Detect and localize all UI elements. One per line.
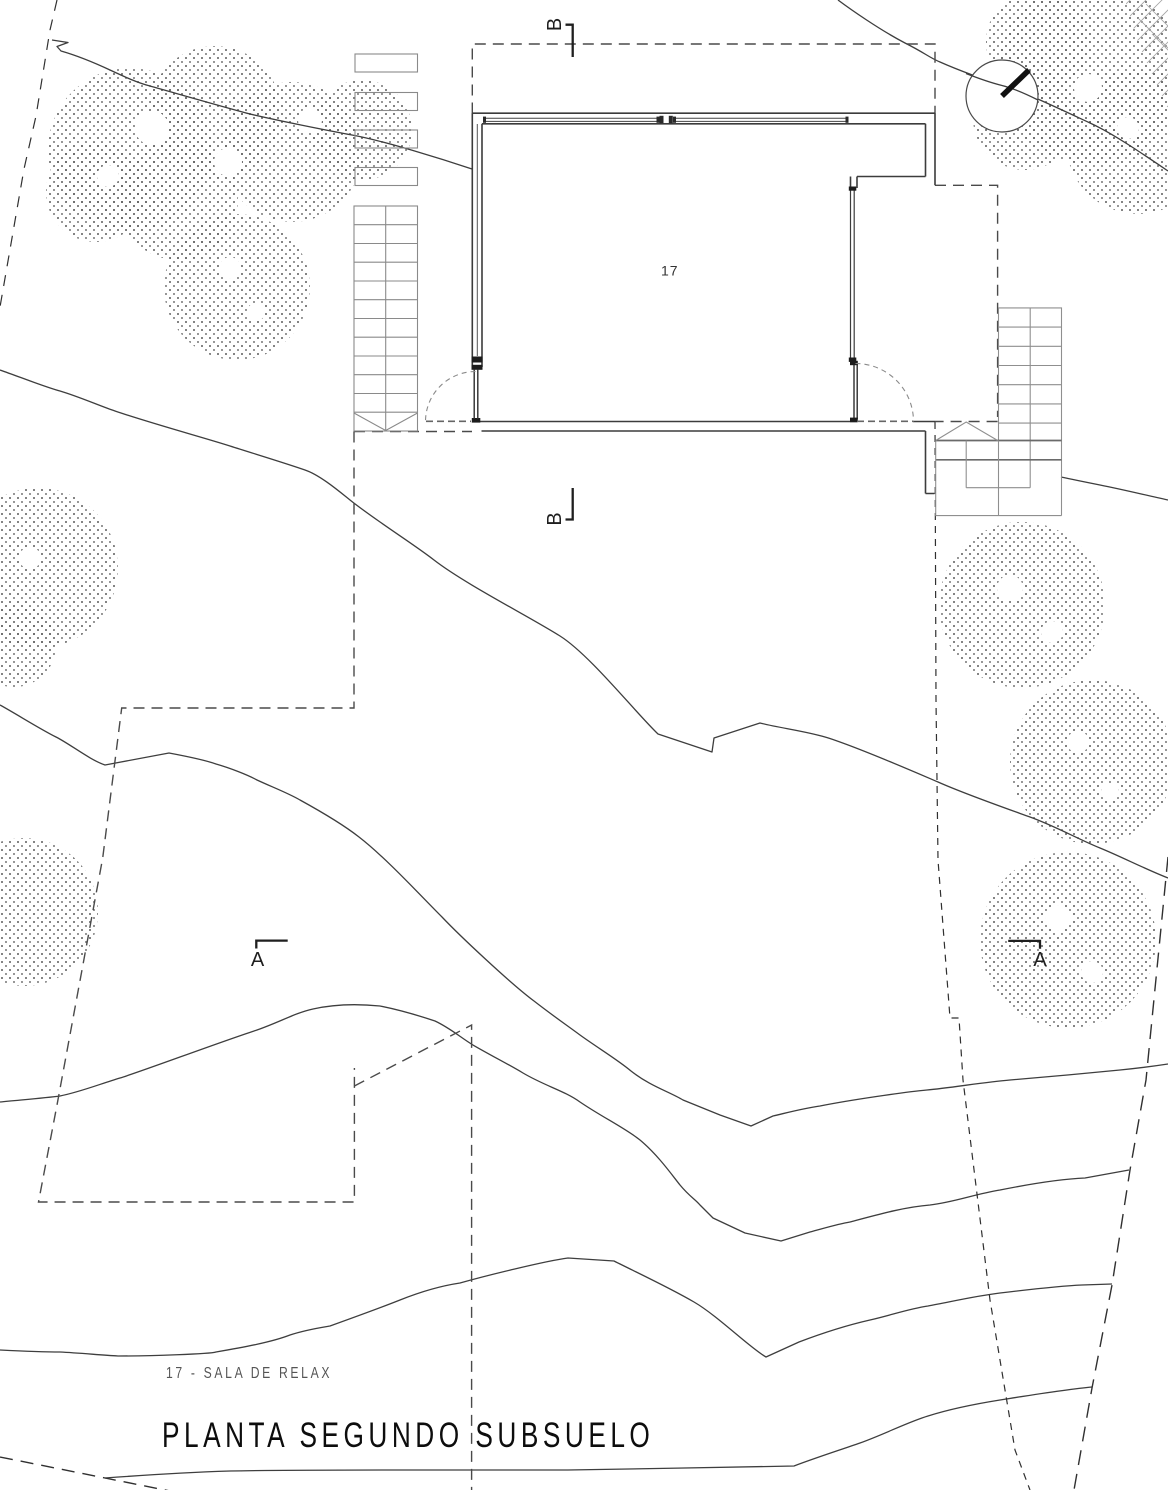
svg-text:17: 17 bbox=[661, 263, 679, 279]
svg-text:PLANTA SEGUNDO SUBSUELO: PLANTA SEGUNDO SUBSUELO bbox=[162, 1415, 654, 1455]
svg-text:17 - SALA DE RELAX: 17 - SALA DE RELAX bbox=[166, 1364, 332, 1382]
svg-text:A: A bbox=[1033, 949, 1047, 971]
svg-text:B: B bbox=[544, 18, 566, 31]
svg-text:A: A bbox=[251, 949, 265, 971]
svg-text:B: B bbox=[544, 512, 566, 525]
